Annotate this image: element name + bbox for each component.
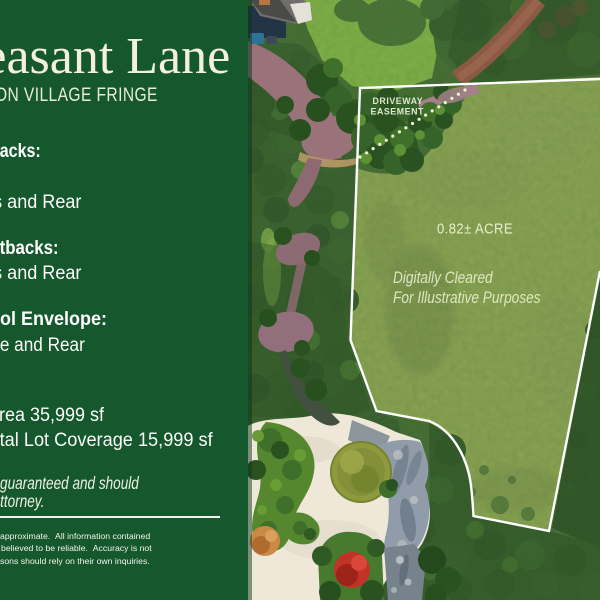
svg-text:0.82± ACRE: 0.82± ACRE	[437, 220, 513, 237]
svg-text:DRIVEWAY: DRIVEWAY	[373, 96, 424, 106]
svg-text:For Illustrative Purposes: For Illustrative Purposes	[393, 289, 541, 307]
svg-text:EASEMENT: EASEMENT	[371, 106, 424, 116]
svg-text:Digitally Cleared: Digitally Cleared	[393, 269, 493, 287]
